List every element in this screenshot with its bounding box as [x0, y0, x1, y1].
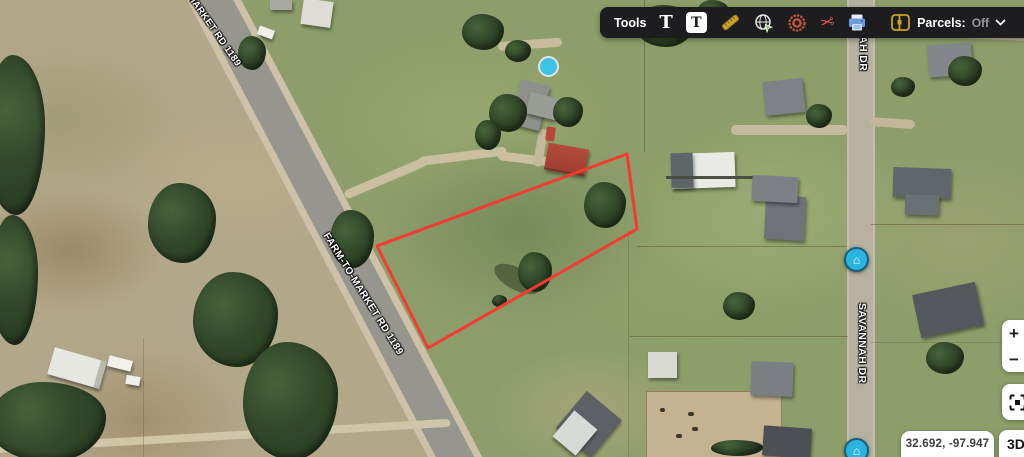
map-toolbar: Tools T T	[600, 7, 1024, 38]
road-label-savannah-upper: AH DR	[857, 36, 869, 71]
parcel-layers-icon	[890, 12, 911, 33]
focus-brackets-icon	[1008, 393, 1024, 412]
text-tool-button[interactable]: T	[659, 14, 672, 32]
driveway-curve-1	[343, 157, 428, 200]
parcels-dropdown[interactable]: Parcels: Off	[890, 12, 1006, 33]
house-lower-middle	[750, 361, 793, 396]
cursor-coordinates: 32.692, -97.947	[901, 431, 994, 457]
view-3d-button[interactable]: 3D	[999, 430, 1024, 457]
snap-target-tool-button[interactable]	[787, 13, 807, 33]
print-button[interactable]	[847, 13, 867, 33]
map-viewport[interactable]: MARKET RD 1189 FARM-TO-MARKET RD 1189 AH…	[0, 0, 1024, 457]
white-shed	[648, 352, 677, 378]
zoom-control: + −	[1002, 320, 1024, 372]
text-box-icon: T	[686, 12, 707, 33]
driveway-curve-2	[418, 146, 506, 166]
zoom-in-button[interactable]: +	[1002, 320, 1024, 346]
target-coil-icon	[787, 13, 807, 33]
ruler-icon	[720, 12, 741, 33]
printer-icon	[847, 13, 867, 33]
driveway-barn	[731, 125, 848, 135]
parcels-label: Parcels:	[917, 16, 966, 30]
scissors-icon: ✂	[818, 13, 835, 32]
barn-top-left	[300, 0, 333, 28]
globe-cursor-icon	[754, 13, 774, 33]
globe-select-tool-button[interactable]	[754, 13, 774, 33]
home-icon: ⌂	[853, 254, 860, 266]
measure-tool-button[interactable]	[720, 12, 741, 33]
text-box-tool-button[interactable]: T	[686, 12, 707, 33]
parcels-value: Off	[972, 16, 989, 30]
home-marker-lower[interactable]: ⌂	[844, 438, 869, 457]
house-bottom-right	[762, 425, 812, 457]
road-label-savannah-lower: SAVANNAH DR	[856, 303, 868, 383]
zoom-out-button[interactable]: −	[1002, 346, 1024, 372]
house-northeast	[762, 78, 805, 116]
home-marker-upper[interactable]: ⌂	[844, 247, 869, 272]
home-icon: ⌂	[853, 445, 860, 457]
swimming-pool	[538, 56, 559, 77]
house-right-lower	[912, 282, 984, 338]
red-roof-barn	[544, 143, 589, 177]
text-tool-icon: T	[659, 14, 672, 32]
recenter-button[interactable]	[1002, 384, 1024, 420]
cut-tool-button[interactable]: ✂	[820, 14, 834, 31]
driveway-east	[870, 117, 916, 129]
chevron-down-icon	[995, 19, 1006, 26]
tools-label: Tools	[614, 16, 646, 30]
